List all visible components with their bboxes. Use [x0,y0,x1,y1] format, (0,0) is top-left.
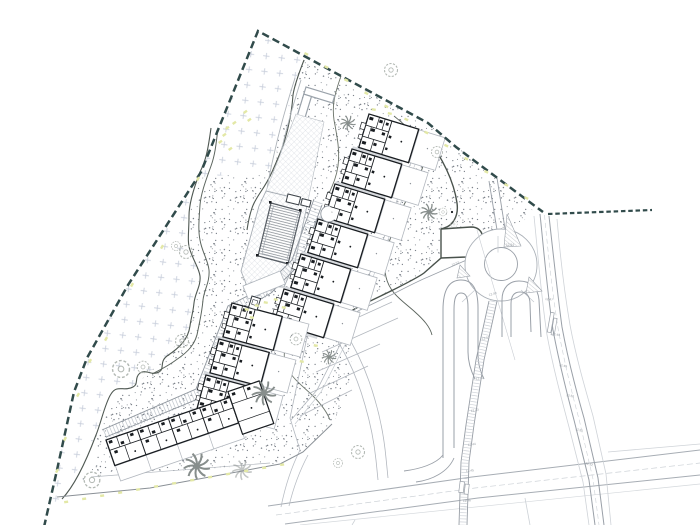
svg-text:12.45: 12.45 [466,468,475,473]
svg-text:12.47: 12.47 [545,297,554,302]
svg-text:12.46: 12.46 [463,498,472,503]
svg-text:12.54: 12.54 [506,243,514,247]
